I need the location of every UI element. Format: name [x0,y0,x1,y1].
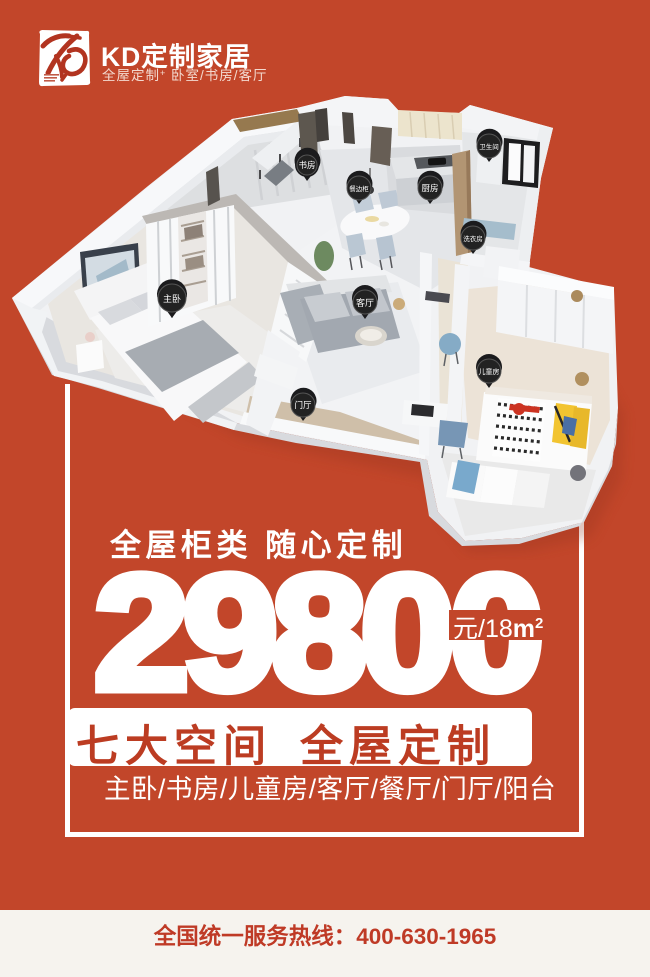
svg-text:书房: 书房 [298,160,315,170]
svg-text:卫生间: 卫生间 [479,142,499,151]
svg-text:儿童房: 儿童房 [479,367,500,376]
svg-text:门厅: 门厅 [294,400,312,410]
svg-text:餐边柜: 餐边柜 [349,184,369,193]
svg-text:洗衣房: 洗衣房 [463,234,483,243]
svg-text:主卧: 主卧 [163,293,181,304]
svg-text:客厅: 客厅 [356,297,374,308]
svg-text:厨房: 厨房 [421,183,438,193]
